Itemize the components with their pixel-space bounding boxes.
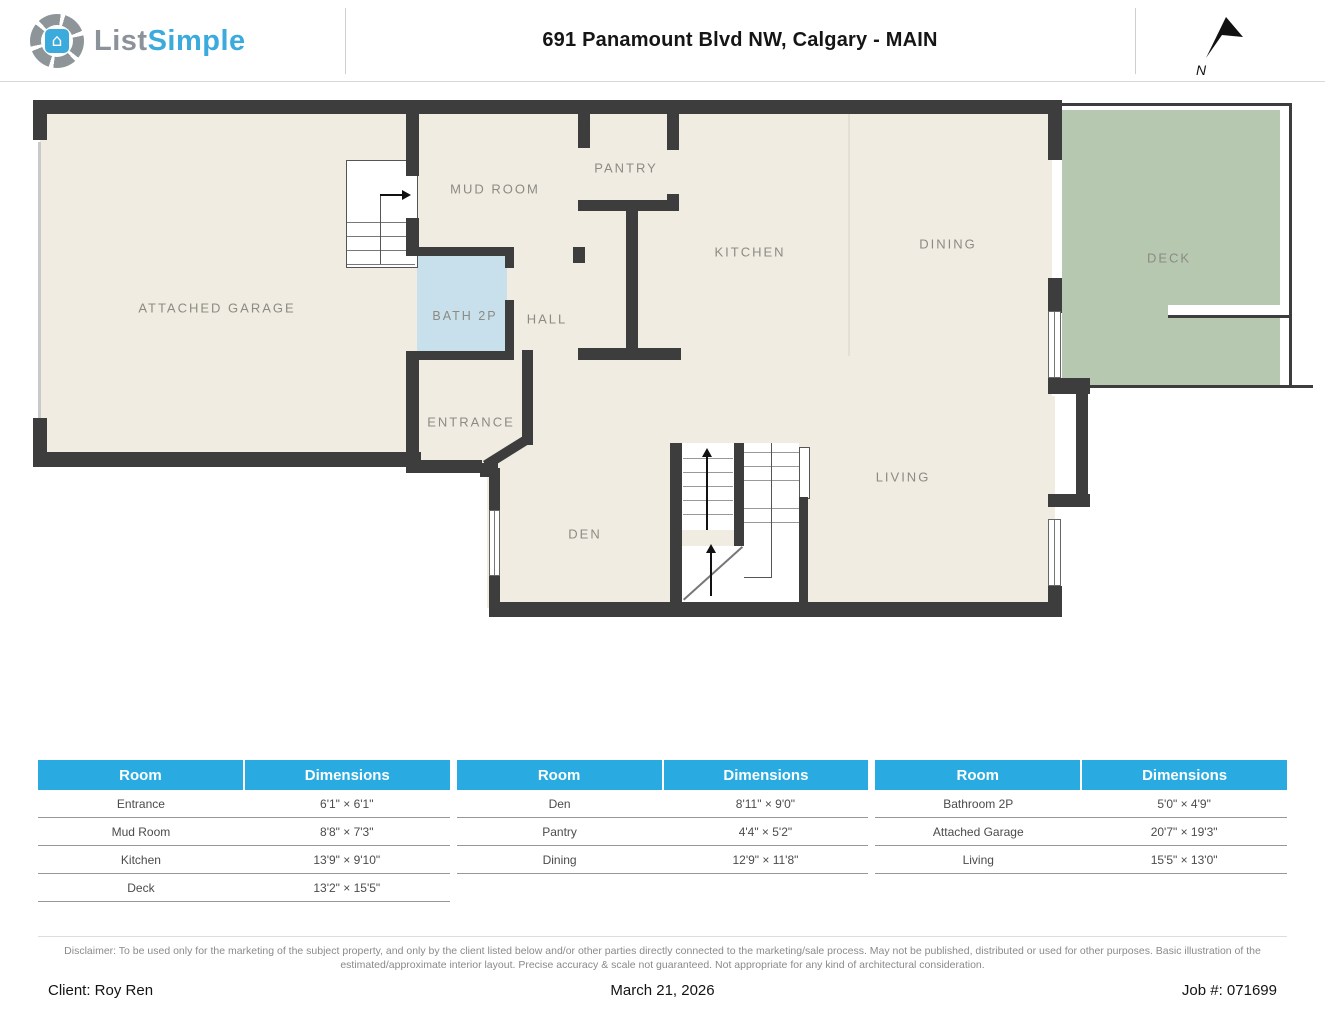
wall bbox=[670, 443, 682, 605]
table-header-row: RoomDimensions bbox=[38, 760, 450, 790]
wall bbox=[505, 256, 514, 268]
stair-rail bbox=[799, 447, 810, 499]
stair-arrow-head bbox=[706, 544, 716, 553]
table-header-row: RoomDimensions bbox=[457, 760, 869, 790]
job-number-label: Job #: 071699 bbox=[1182, 982, 1277, 999]
wall bbox=[578, 348, 681, 360]
floor-plan: ATTACHED GARAGE MUD ROOM PANTRY KITCHEN … bbox=[0, 81, 1325, 641]
table-cell: Dining bbox=[457, 846, 663, 873]
table-cell: Pantry bbox=[457, 818, 663, 845]
garage-door-line bbox=[38, 142, 41, 418]
table-header-cell: Room bbox=[457, 760, 664, 790]
page-title: 691 Panamount Blvd NW, Calgary - MAIN bbox=[345, 0, 1135, 81]
wall bbox=[33, 100, 1062, 114]
room-label-bath: BATH 2P bbox=[432, 309, 497, 323]
wall bbox=[522, 350, 533, 445]
stair-tread bbox=[347, 250, 415, 251]
table-cell: 20'7" × 19'3" bbox=[1081, 818, 1287, 845]
stair-tread bbox=[683, 458, 733, 459]
room-label-deck: DECK bbox=[1147, 251, 1191, 266]
wall bbox=[406, 351, 514, 360]
logo-text-simple: Simple bbox=[148, 25, 246, 57]
wall bbox=[1048, 494, 1090, 507]
table-cell: 4'4" × 5'2" bbox=[663, 818, 869, 845]
stair-tread bbox=[683, 500, 733, 501]
table-header-row: RoomDimensions bbox=[875, 760, 1287, 790]
north-arrow-icon bbox=[1198, 14, 1246, 62]
stair-tread bbox=[683, 486, 733, 487]
table-row: Mud Room8'8" × 7'3" bbox=[38, 818, 450, 846]
disclaimer-text: Disclaimer: To be used only for the mark… bbox=[45, 944, 1280, 972]
stair-arrow-head bbox=[402, 190, 411, 200]
wall bbox=[578, 200, 679, 211]
table-cell: 13'2" × 15'5" bbox=[244, 874, 450, 901]
room-label-dining: DINING bbox=[919, 237, 977, 252]
wall bbox=[406, 360, 419, 463]
stair-tread bbox=[347, 222, 415, 223]
table-cell: Living bbox=[875, 846, 1081, 873]
deck-outline-right bbox=[1289, 103, 1292, 388]
floor-deck bbox=[1062, 110, 1280, 385]
table-header-cell: Room bbox=[38, 760, 245, 790]
dimensions-table: RoomDimensionsEntrance6'1" × 6'1"Mud Roo… bbox=[38, 760, 1287, 902]
date-label: March 21, 2026 bbox=[610, 982, 714, 999]
table-header-cell: Dimensions bbox=[1082, 760, 1287, 790]
table-cell: Mud Room bbox=[38, 818, 244, 845]
table-row: Bathroom 2P5'0" × 4'9" bbox=[875, 790, 1287, 818]
wall bbox=[489, 468, 500, 512]
wall bbox=[578, 114, 590, 148]
wall bbox=[667, 114, 679, 150]
stair-arrow-head bbox=[702, 448, 712, 457]
table-header-cell: Room bbox=[875, 760, 1082, 790]
wall bbox=[1048, 586, 1062, 617]
room-label-mudroom: MUD ROOM bbox=[450, 182, 540, 197]
table-row: Deck13'2" × 15'5" bbox=[38, 874, 450, 902]
stair-line bbox=[380, 196, 381, 264]
room-label-pantry: PANTRY bbox=[594, 161, 658, 176]
floor-bathroom bbox=[417, 252, 507, 353]
table-cell: 13'9" × 9'10" bbox=[244, 846, 450, 873]
page-header: ⌂ ListSimple 691 Panamount Blvd NW, Calg… bbox=[0, 0, 1325, 82]
deck-step-line bbox=[1168, 315, 1289, 318]
wall bbox=[406, 247, 514, 256]
table-cell: Kitchen bbox=[38, 846, 244, 873]
wall bbox=[489, 602, 1062, 617]
wall bbox=[33, 100, 47, 140]
table-group-3: RoomDimensionsBathroom 2P5'0" × 4'9"Atta… bbox=[875, 760, 1287, 902]
window bbox=[1048, 311, 1061, 378]
page-footer: Client: Roy Ren March 21, 2026 Job #: 07… bbox=[48, 982, 1277, 1002]
stair-line bbox=[771, 443, 772, 577]
stair-arrow-line bbox=[706, 456, 708, 530]
wall bbox=[573, 247, 585, 263]
header-divider-right bbox=[1135, 8, 1136, 74]
window bbox=[1048, 519, 1061, 586]
wall bbox=[1048, 100, 1062, 160]
logo-text-list: List bbox=[94, 25, 148, 57]
table-row: Den8'11" × 9'0" bbox=[457, 790, 869, 818]
compass: N bbox=[1190, 12, 1260, 78]
wall bbox=[799, 497, 808, 605]
table-cell: Deck bbox=[38, 874, 244, 901]
window bbox=[489, 510, 500, 576]
stair-tread bbox=[347, 236, 415, 237]
aperture-house-icon: ⌂ bbox=[30, 14, 84, 68]
house-icon: ⌂ bbox=[45, 29, 69, 53]
stair-arrow-line bbox=[710, 552, 712, 596]
stair-line bbox=[744, 577, 772, 578]
room-label-entrance: ENTRANCE bbox=[427, 415, 515, 430]
table-header-cell: Dimensions bbox=[245, 760, 450, 790]
table-cell: 8'8" × 7'3" bbox=[244, 818, 450, 845]
table-cell: 5'0" × 4'9" bbox=[1081, 790, 1287, 817]
table-cell: Attached Garage bbox=[875, 818, 1081, 845]
table-cell: 12'9" × 11'8" bbox=[663, 846, 869, 873]
room-label-hall: HALL bbox=[527, 312, 568, 327]
table-row: Attached Garage20'7" × 19'3" bbox=[875, 818, 1287, 846]
room-label-garage: ATTACHED GARAGE bbox=[138, 301, 295, 316]
table-cell: 15'5" × 13'0" bbox=[1081, 846, 1287, 873]
floor-garage bbox=[40, 106, 412, 458]
stair-tread bbox=[683, 514, 733, 515]
table-cell: Entrance bbox=[38, 790, 244, 817]
wall bbox=[1076, 394, 1088, 498]
wall bbox=[626, 211, 638, 360]
wall bbox=[1048, 378, 1090, 394]
table-cell: Den bbox=[457, 790, 663, 817]
client-label: Client: Roy Ren bbox=[48, 982, 153, 999]
wall bbox=[406, 114, 419, 176]
table-row: Pantry4'4" × 5'2" bbox=[457, 818, 869, 846]
kitchen-dining-divider bbox=[848, 114, 850, 356]
room-label-living: LIVING bbox=[876, 470, 931, 485]
room-label-kitchen: KITCHEN bbox=[714, 245, 785, 260]
table-cell: Bathroom 2P bbox=[875, 790, 1081, 817]
wall bbox=[406, 460, 482, 473]
table-group-1: RoomDimensionsEntrance6'1" × 6'1"Mud Roo… bbox=[38, 760, 450, 902]
room-label-den: DEN bbox=[568, 527, 601, 542]
table-cell: 8'11" × 9'0" bbox=[663, 790, 869, 817]
wall bbox=[1048, 278, 1062, 313]
table-group-2: RoomDimensionsDen8'11" × 9'0"Pantry4'4" … bbox=[457, 760, 869, 902]
disclaimer-divider bbox=[38, 936, 1287, 937]
table-row: Entrance6'1" × 6'1" bbox=[38, 790, 450, 818]
compass-north-label: N bbox=[1196, 62, 1206, 78]
listsimple-logo: ⌂ ListSimple bbox=[30, 14, 246, 68]
table-header-cell: Dimensions bbox=[664, 760, 869, 790]
logo-wordmark: ListSimple bbox=[94, 25, 246, 58]
wall bbox=[734, 443, 744, 546]
wall bbox=[33, 452, 421, 467]
deck-outline-top bbox=[1062, 103, 1292, 106]
stair-tread bbox=[683, 472, 733, 473]
deck-outline-bottom bbox=[1062, 385, 1313, 388]
stair-tread bbox=[347, 264, 415, 265]
table-cell: 6'1" × 6'1" bbox=[244, 790, 450, 817]
table-row: Kitchen13'9" × 9'10" bbox=[38, 846, 450, 874]
table-row: Dining12'9" × 11'8" bbox=[457, 846, 869, 874]
table-row: Living15'5" × 13'0" bbox=[875, 846, 1287, 874]
